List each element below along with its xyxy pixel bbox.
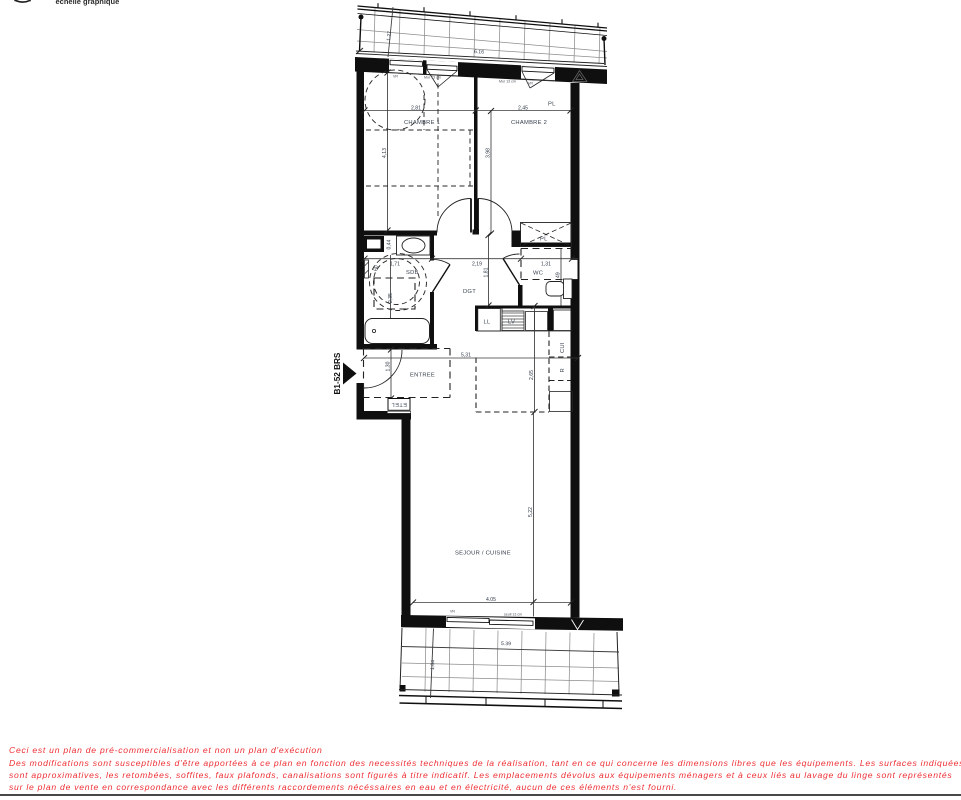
svg-text:Mur 13 cm: Mur 13 cm	[499, 80, 516, 84]
svg-text:1,81: 1,81	[484, 267, 490, 277]
svg-text:LV: LV	[508, 320, 515, 326]
svg-text:PL: PL	[540, 237, 548, 243]
svg-text:2,81: 2,81	[411, 105, 421, 111]
svg-text:CHAMBRE 2: CHAMBRE 2	[511, 120, 547, 126]
svg-text:4,13: 4,13	[382, 148, 388, 158]
svg-text:R: R	[560, 368, 566, 372]
svg-text:B1-52 BRS: B1-52 BRS	[333, 352, 342, 394]
svg-text:49: 49	[556, 272, 562, 278]
svg-text:CHAMBRE 1: CHAMBRE 1	[404, 120, 440, 126]
svg-text:2,45: 2,45	[518, 105, 528, 111]
svg-text:WC: WC	[533, 271, 543, 277]
svg-text:3,98: 3,98	[486, 148, 492, 158]
svg-text:0,44: 0,44	[387, 239, 393, 249]
svg-text:SEJOUR / CUISINE: SEJOUR / CUISINE	[455, 551, 511, 557]
svg-text:PL: PL	[548, 102, 556, 108]
svg-text:ETEL: ETEL	[391, 401, 407, 407]
svg-text:VR: VR	[393, 75, 398, 79]
svg-text:2,35: 2,35	[388, 293, 394, 303]
svg-text:5,22: 5,22	[528, 507, 534, 517]
svg-text:2,65: 2,65	[529, 370, 535, 380]
svg-text:5,31: 5,31	[461, 352, 471, 358]
svg-text:SDB: SDB	[406, 270, 419, 276]
svg-text:1.27: 1.27	[386, 31, 393, 42]
svg-text:2,19: 2,19	[472, 262, 482, 268]
svg-text:1,30: 1,30	[386, 361, 392, 371]
svg-text:4.05: 4.05	[486, 597, 496, 603]
svg-text:1,31: 1,31	[541, 262, 551, 268]
svg-text:6.16: 6.16	[474, 49, 484, 56]
svg-text:CUI: CUI	[560, 342, 566, 353]
svg-text:1.64: 1.64	[430, 660, 436, 670]
svg-text:VR: VR	[450, 610, 455, 614]
svg-text:1,71: 1,71	[390, 262, 400, 268]
svg-text:DGT: DGT	[463, 289, 476, 295]
svg-text:VR: VR	[528, 82, 533, 86]
svg-text:seuil 13 cm: seuil 13 cm	[504, 613, 522, 617]
svg-text:échelle graphique: échelle graphique	[56, 0, 120, 6]
svg-text:ENTREE: ENTREE	[410, 373, 435, 379]
svg-text:5.39: 5.39	[501, 641, 511, 647]
svg-text:LL: LL	[484, 320, 491, 326]
svg-text:Mur 13 cm: Mur 13 cm	[424, 76, 441, 80]
